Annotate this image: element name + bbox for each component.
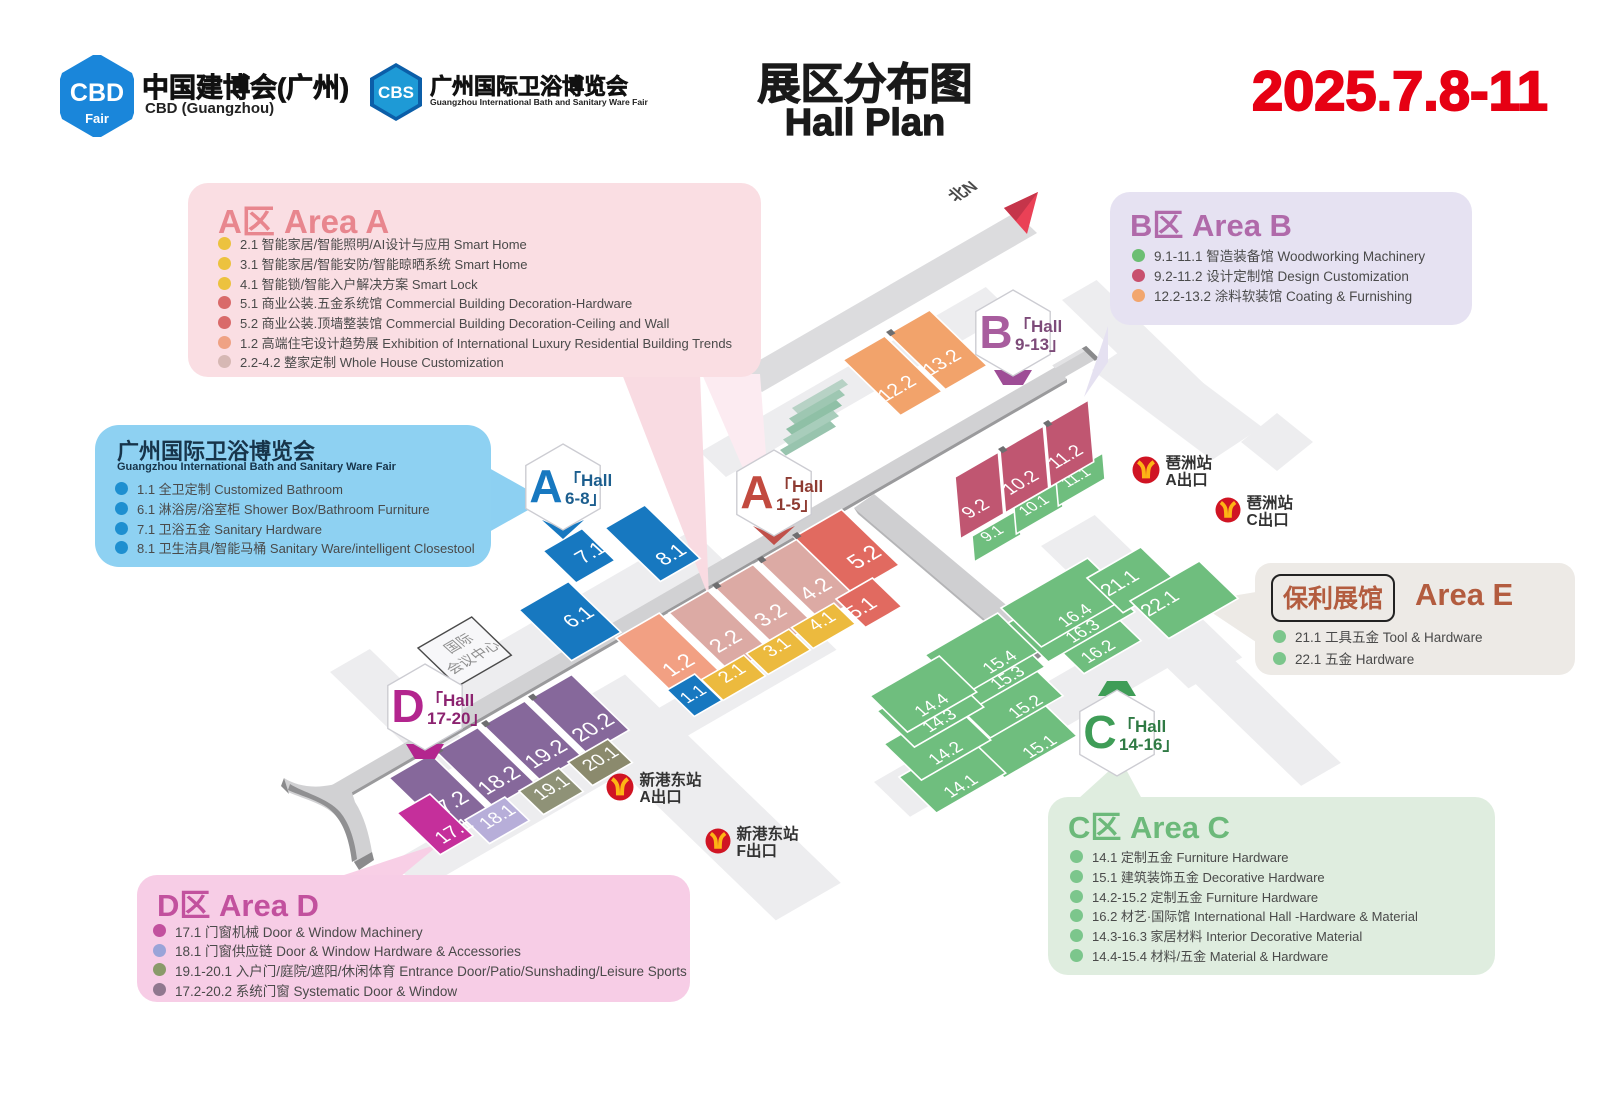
svg-text:「Hall: 「Hall [1118,716,1166,736]
svg-text:「Hall: 「Hall [426,690,474,710]
svg-text:新港东站: 新港东站 [737,824,800,843]
svg-text:6-8」: 6-8」 [565,489,607,508]
svg-text:「Hall: 「Hall [564,470,612,490]
svg-text:CBD: CBD [70,79,124,107]
svg-text:A出口: A出口 [640,787,682,806]
svg-text:17-20」: 17-20」 [427,709,487,728]
svg-text:1-5」: 1-5」 [776,495,818,514]
svg-text:C: C [1083,706,1116,758]
svg-text:「Hall: 「Hall [1014,316,1062,336]
svg-text:琶洲站: 琶洲站 [1166,453,1213,472]
svg-text:A: A [740,466,773,518]
svg-text:「Hall: 「Hall [775,476,823,496]
svg-text:F出口: F出口 [737,841,777,860]
svg-text:D: D [391,680,424,732]
svg-text:Fair: Fair [85,111,109,126]
svg-text:新港东站: 新港东站 [640,770,703,789]
svg-text:A出口: A出口 [1166,470,1208,489]
svg-text:14-16」: 14-16」 [1119,735,1179,754]
svg-text:北N: 北N [944,179,982,205]
svg-text:B: B [979,306,1012,358]
svg-text:A: A [529,460,562,512]
svg-text:琶洲站: 琶洲站 [1247,493,1294,512]
svg-text:CBS: CBS [378,83,414,102]
svg-text:9-13」: 9-13」 [1015,335,1066,354]
svg-text:C出口: C出口 [1247,510,1289,529]
